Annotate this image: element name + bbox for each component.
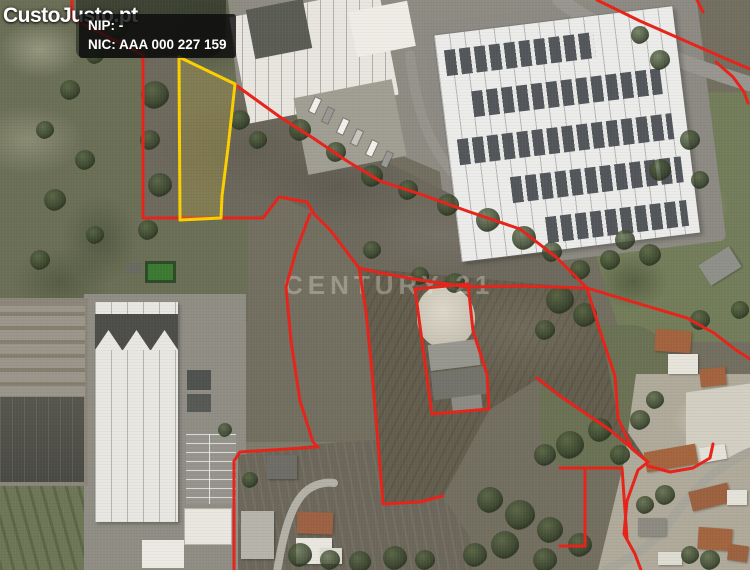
parcel-boundary-north-diagonal — [237, 86, 587, 288]
nip-value: NIP: - — [88, 16, 227, 35]
parcel-boundary-village-loop — [648, 444, 713, 472]
boundary-layer — [0, 0, 750, 570]
property-id-label: NIP: - NIC: AAA 000 227 159 — [79, 14, 236, 58]
parcel-boundary-village-link — [537, 378, 648, 462]
nic-value: NIC: AAA 000 227 159 — [88, 35, 227, 54]
parcel-boundary-small-parcel-2 — [560, 468, 585, 546]
parcel-boundary-road-north — [597, 0, 750, 69]
parcel-boundary-stub-north — [697, 0, 703, 12]
parcel-boundary-strip-west — [359, 268, 443, 504]
parcel-boundary-farm-compound — [415, 284, 489, 414]
parcel-boundary-field-north — [359, 268, 587, 288]
parcel-boundary-small-parcel — [560, 468, 627, 538]
highlighted-parcel — [179, 57, 235, 220]
parcel-boundary-south-east — [587, 288, 648, 570]
parcel-boundary-east — [587, 288, 750, 359]
satellite-map: CENTURY 21 CustoJusto.pt NIP: - NIC: AAA… — [0, 0, 750, 570]
parcel-boundary-road-north-2 — [716, 62, 748, 103]
parcel-boundary-south-west — [234, 214, 318, 570]
